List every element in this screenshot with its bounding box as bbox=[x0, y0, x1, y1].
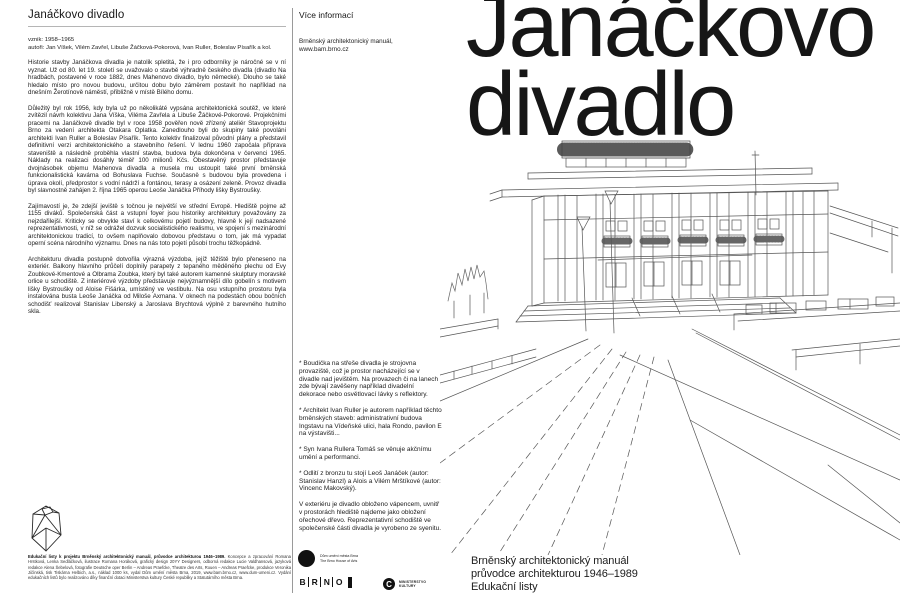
source-block: Brněnský architektonický manuál, www.bam… bbox=[299, 38, 393, 54]
column-divider bbox=[292, 8, 293, 593]
ministry-line2: KULTURY bbox=[399, 584, 426, 588]
meta-block: vznik: 1958–1965 autoři: Jan Víšek, Vilé… bbox=[28, 37, 271, 52]
footnote: * Syn Ivana Rullera Tomáš se věnuje akčn… bbox=[299, 446, 442, 462]
ministry-of-culture-logo: C MINISTERSTVO KULTURY bbox=[383, 578, 426, 590]
more-info-header: Více informací bbox=[299, 10, 353, 20]
imprint-colophon: Edukační listy k projektu Brněnský archi… bbox=[28, 554, 291, 580]
series-type: Edukační listy bbox=[471, 581, 638, 594]
ministry-circle-icon: C bbox=[383, 578, 395, 590]
house-of-arts-line2: The Brno House of Arts bbox=[320, 559, 358, 564]
source-name: Brněnský architektonický manuál, bbox=[299, 38, 393, 46]
brno-city-logo: B R N O bbox=[297, 577, 352, 588]
paragraph: Důležitý byl rok 1956, kdy byla už po ně… bbox=[28, 105, 286, 195]
brno-letter: R bbox=[309, 577, 320, 587]
series-subtitle: průvodce architekturou 1946–1989 bbox=[471, 568, 638, 581]
paragraph: Zajímavostí je, že zdejší jeviště s točn… bbox=[28, 203, 286, 248]
house-of-arts-line1: Dům umění města Brna bbox=[320, 554, 358, 559]
cover-title: Janáčkovo divadlo bbox=[466, 0, 874, 145]
brno-letter: N bbox=[321, 577, 332, 587]
meta-vznik: vznik: 1958–1965 bbox=[28, 37, 271, 45]
imprint-title: Edukační listy k projektu Brněnský archi… bbox=[28, 554, 225, 559]
footnote: * Odlití z bronzu tu stojí Leoš Janáček … bbox=[299, 470, 442, 493]
paragraph: Historie stavby Janáčkova divadla je nat… bbox=[28, 59, 286, 97]
house-of-arts-logo: Dům umění města Brna The Brno House of A… bbox=[298, 550, 358, 567]
ministry-label: MINISTERSTVO KULTURY bbox=[399, 580, 426, 588]
footnote: V exteriéru je divadlo obloženo vápencem… bbox=[299, 501, 442, 532]
edukacni-list-page: Janáčkovo divadlo vznik: 1958–1965 autoř… bbox=[0, 0, 900, 600]
brno-logo-endbar bbox=[348, 577, 352, 588]
footnote: * Boudička na střeše divadla je strojovn… bbox=[299, 360, 442, 399]
series-footer: Brněnský architektonický manuál průvodce… bbox=[471, 555, 638, 593]
theatre-line-drawing bbox=[440, 133, 900, 555]
house-of-arts-label: Dům umění města Brna The Brno House of A… bbox=[320, 554, 358, 563]
brno-letter: B bbox=[297, 577, 308, 587]
house-of-arts-circle-icon bbox=[298, 550, 315, 567]
page-title: Janáčkovo divadlo bbox=[28, 9, 124, 21]
body-text: Historie stavby Janáčkova divadla je nat… bbox=[28, 59, 286, 324]
series-name: Brněnský architektonický manuál bbox=[471, 555, 638, 568]
title-rule bbox=[28, 26, 286, 27]
source-url: www.bam.brno.cz bbox=[299, 46, 393, 54]
footnotes-block: * Boudička na střeše divadla je strojovn… bbox=[299, 360, 442, 540]
paragraph: Architekturu divadla postupně dotvořila … bbox=[28, 256, 286, 316]
footnote: * Architekt Ivan Ruller je autorem napří… bbox=[299, 407, 442, 438]
meta-autori: autoři: Jan Víšek, Vilém Zavřel, Libuše … bbox=[28, 45, 271, 53]
brno-letter: O bbox=[333, 577, 345, 587]
cover-title-line2: divadlo bbox=[466, 66, 874, 145]
house-crystal-icon bbox=[30, 505, 63, 557]
